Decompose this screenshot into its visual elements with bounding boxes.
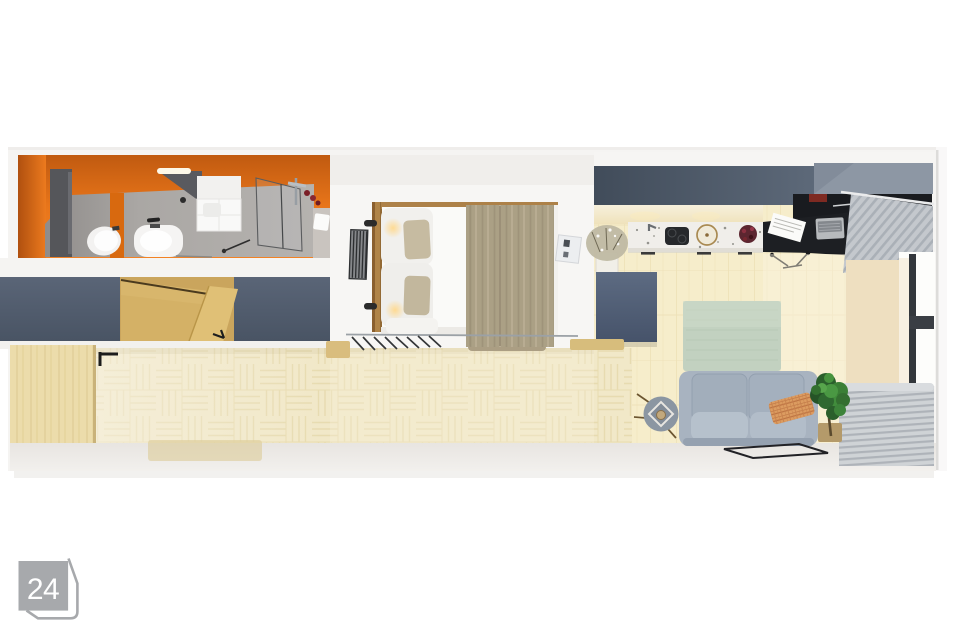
svg-text:24: 24 bbox=[27, 573, 59, 606]
